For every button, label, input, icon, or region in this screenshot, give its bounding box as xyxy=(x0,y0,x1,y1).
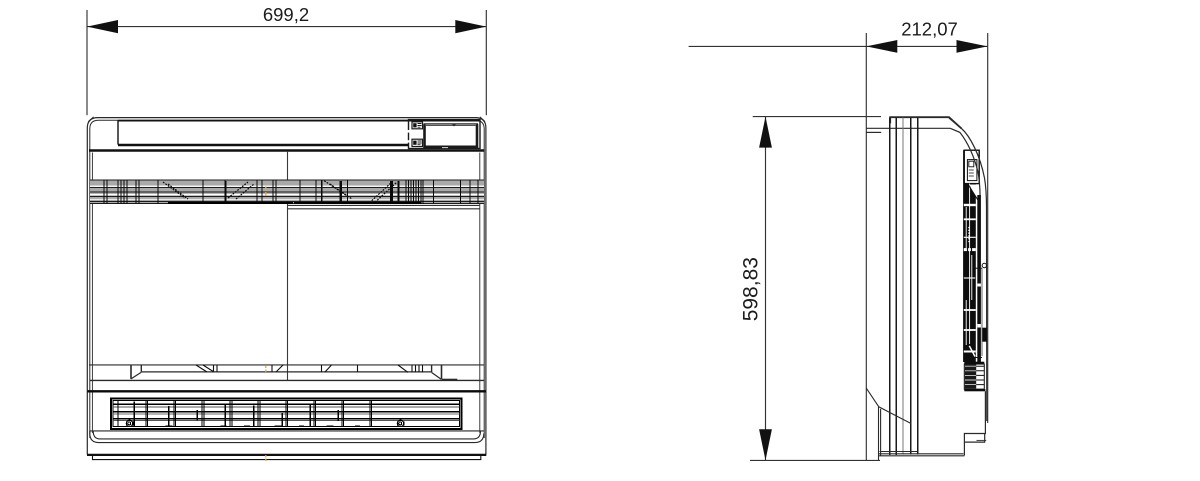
svg-text:699,2: 699,2 xyxy=(263,4,309,25)
svg-text:598,83: 598,83 xyxy=(739,257,762,321)
svg-text:212,07: 212,07 xyxy=(901,19,958,40)
